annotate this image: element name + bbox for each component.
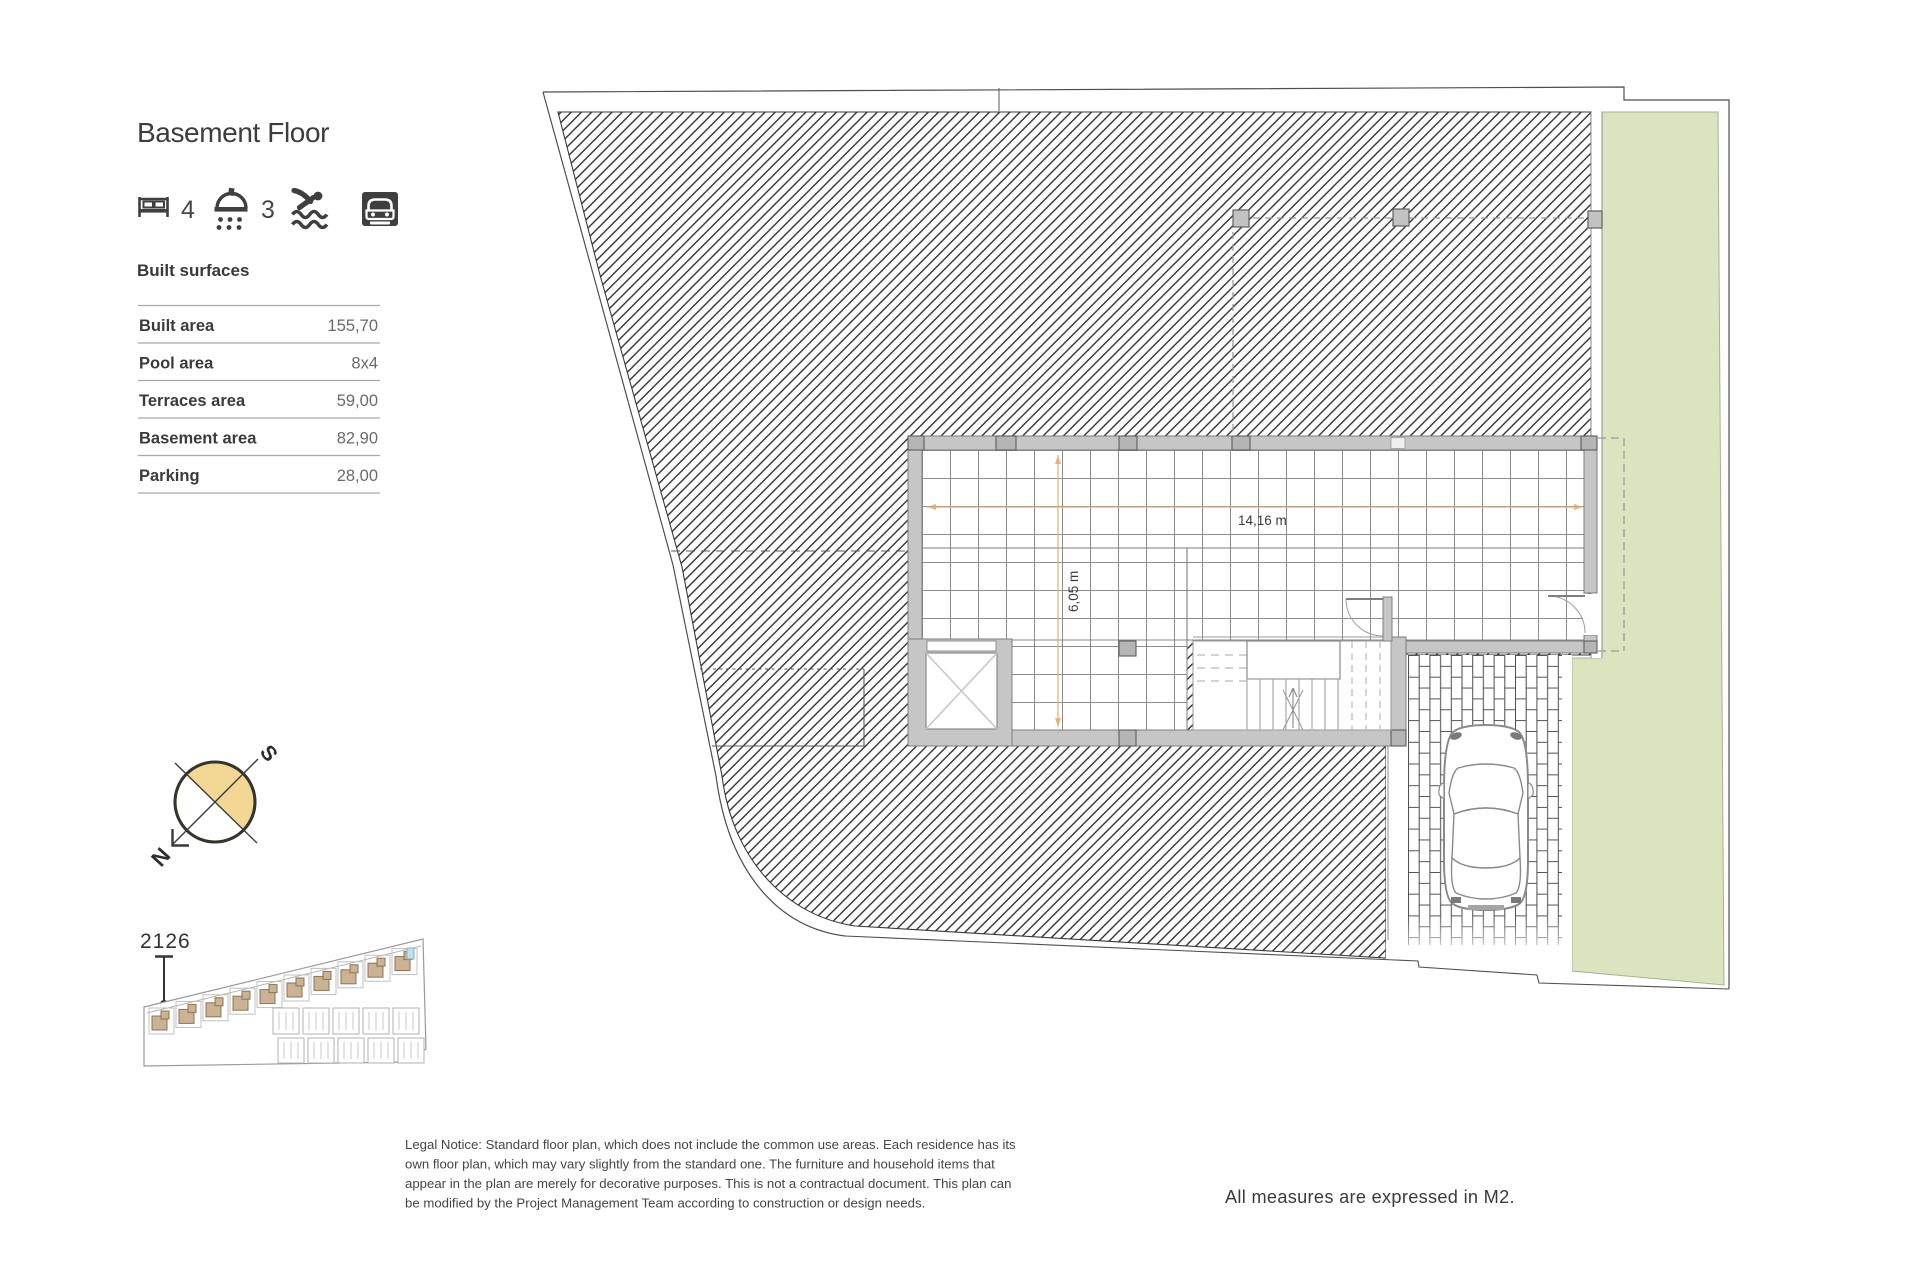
svg-text:28,00: 28,00 [337, 467, 378, 485]
svg-text:155,70: 155,70 [328, 317, 378, 335]
svg-text:S: S [255, 741, 282, 766]
svg-text:be modified by the Project Man: be modified by the Project Management Te… [405, 1196, 925, 1211]
svg-text:4: 4 [181, 196, 195, 224]
svg-text:Pool area: Pool area [139, 355, 214, 373]
svg-text:appear in the plan are merely: appear in the plan are merely for decora… [405, 1176, 1011, 1191]
svg-text:8x4: 8x4 [351, 355, 378, 373]
svg-text:Legal Notice: Standard floor p: Legal Notice: Standard floor plan, which… [405, 1137, 1016, 1152]
svg-text:59,00: 59,00 [337, 392, 378, 410]
svg-text:14,16 m: 14,16 m [1238, 513, 1287, 528]
svg-text:82,90: 82,90 [337, 430, 378, 448]
svg-text:6,05 m: 6,05 m [1066, 571, 1081, 612]
svg-text:Basement area: Basement area [139, 430, 257, 448]
svg-text:Built surfaces: Built surfaces [137, 261, 249, 280]
svg-text:N: N [146, 843, 175, 872]
svg-text:Parking: Parking [139, 467, 200, 485]
svg-text:own floor plan, which may vary: own floor plan, which may vary slightly … [405, 1157, 995, 1172]
svg-text:2126: 2126 [140, 930, 191, 953]
svg-text:3: 3 [261, 196, 275, 224]
svg-text:Built area: Built area [139, 317, 215, 335]
svg-text:Basement Floor: Basement Floor [137, 117, 329, 148]
svg-text:All measures are expressed in: All measures are expressed in M2. [1225, 1187, 1515, 1207]
svg-text:Terraces area: Terraces area [139, 392, 246, 410]
